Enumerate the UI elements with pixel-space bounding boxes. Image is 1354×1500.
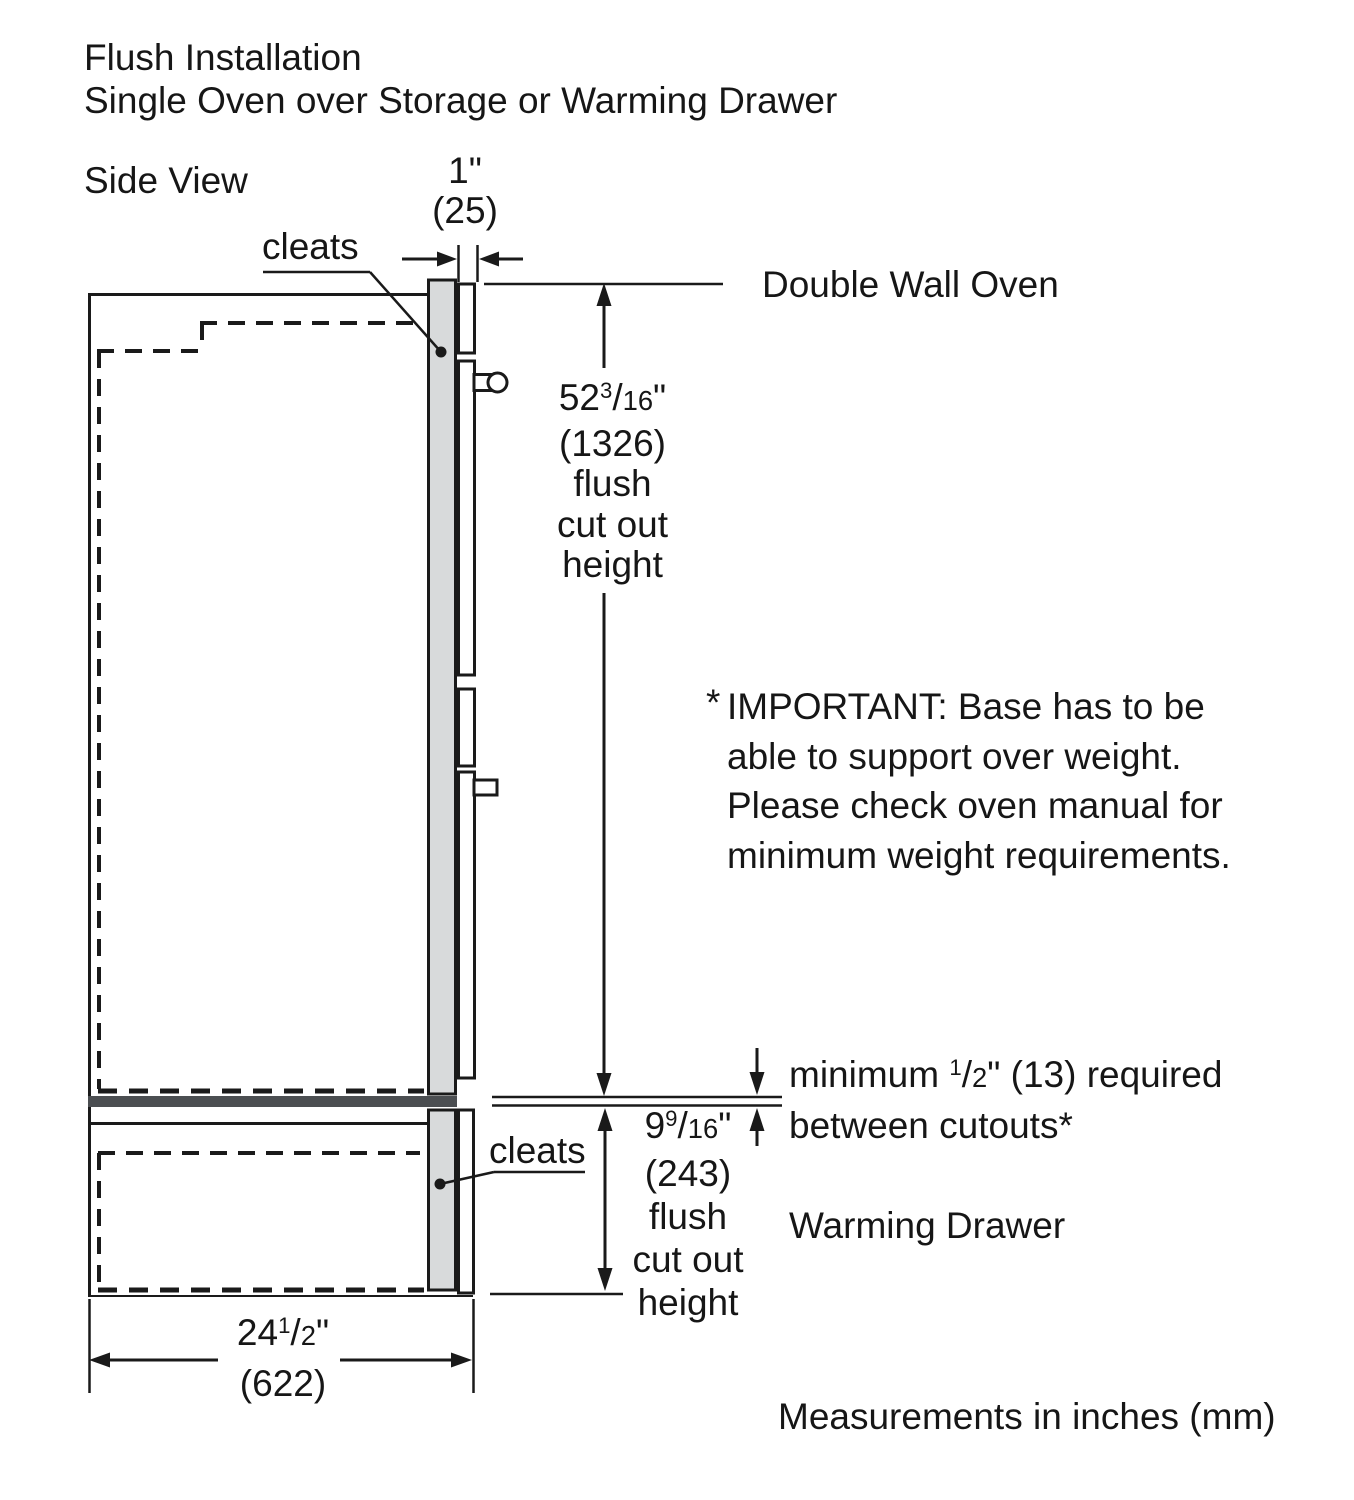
title-line-2: Single Oven over Storage or Warming Draw… — [84, 79, 837, 122]
oven-cutout-fraction: 523/16" — [525, 378, 700, 424]
base-divider-bar — [88, 1096, 457, 1107]
cleat-panel-lower — [429, 1110, 456, 1290]
cleats-leader-upper — [263, 272, 447, 358]
installation-diagram-page: Flush Installation Single Oven over Stor… — [0, 0, 1354, 1500]
important-note: IMPORTANT: Base has to be able to suppor… — [727, 682, 1231, 880]
view-label: Side View — [84, 160, 248, 203]
cleats-label-lower: cleats — [489, 1130, 586, 1173]
cleats-label-upper: cleats — [262, 226, 359, 269]
note-line-1: IMPORTANT: Base has to be — [727, 682, 1231, 732]
min-gap-line-2: between cutouts* — [789, 1103, 1222, 1149]
drawer-cavity-dashed-outline — [98, 1153, 420, 1286]
min-gap-note: minimum 1/2" (13) required between cutou… — [789, 1052, 1222, 1149]
oven-cavity-dashed-outline — [97, 323, 424, 1089]
dim-drawer-cutout-text: 99/16" (243) flush cut out height — [608, 1104, 768, 1324]
depth-fraction: 241/2" — [198, 1310, 368, 1361]
lower-cabinet-outline — [88, 1124, 473, 1297]
lower-oven-handle — [474, 780, 497, 795]
title-line-1: Flush Installation — [84, 36, 837, 79]
drawer-cutout-desc-1: flush — [608, 1195, 768, 1238]
min-gap-line-1: minimum 1/2" (13) required — [789, 1052, 1222, 1103]
oven-cutout-desc-1: flush — [525, 464, 700, 505]
drawer-cutout-desc-3: height — [608, 1281, 768, 1324]
upper-cabinet-outline — [88, 293, 428, 1296]
drawer-cutout-fraction: 99/16" — [608, 1104, 768, 1152]
dim-cleat-thickness-inches: 1" — [405, 150, 525, 193]
depth-mm: (622) — [198, 1361, 368, 1407]
oven-front-panels — [459, 284, 475, 1078]
cleat-panel-upper — [429, 280, 456, 1094]
oven-cutout-mm: (1326) — [525, 424, 700, 465]
dim-oven-cutout-text: 523/16" (1326) flush cut out height — [525, 378, 700, 586]
units-footer: Measurements in inches (mm) — [778, 1396, 1276, 1439]
double-wall-oven-label: Double Wall Oven — [762, 264, 1059, 307]
important-note-star: * — [706, 682, 720, 725]
upper-oven-handle — [474, 373, 507, 392]
dim-depth-text: 241/2" (622) — [198, 1310, 368, 1407]
warming-drawer-label: Warming Drawer — [789, 1205, 1065, 1248]
drawer-front-panel — [459, 1110, 474, 1293]
note-line-3: Please check oven manual for — [727, 781, 1231, 831]
note-line-4: minimum weight requirements. — [727, 831, 1231, 881]
dim-cleat-thickness — [402, 245, 523, 282]
oven-cutout-desc-2: cut out — [525, 505, 700, 546]
drawer-cutout-desc-2: cut out — [608, 1238, 768, 1281]
dim-cleat-thickness-mm: (25) — [405, 190, 525, 233]
oven-cutout-desc-3: height — [525, 545, 700, 586]
page-title: Flush Installation Single Oven over Stor… — [84, 36, 837, 122]
drawer-cutout-mm: (243) — [608, 1152, 768, 1195]
note-line-2: able to support over weight. — [727, 732, 1231, 782]
